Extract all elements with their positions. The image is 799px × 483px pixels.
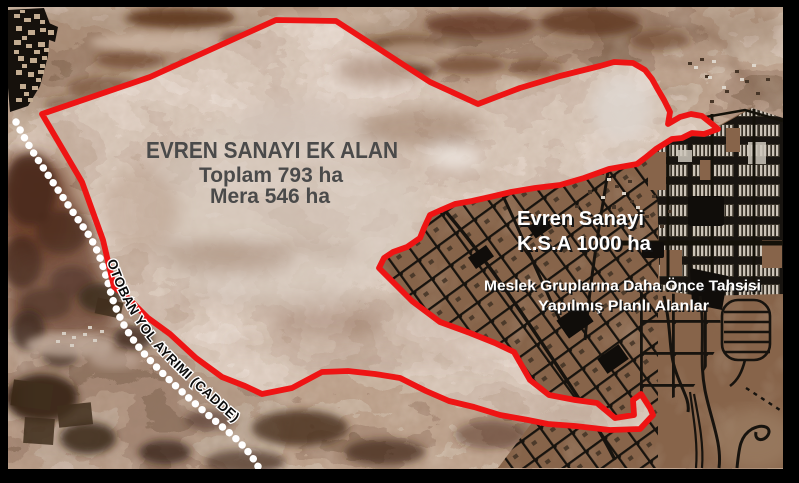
svg-text:Meslek Gruplarına Daha Önce Ta: Meslek Gruplarına Daha Önce Tahsisi bbox=[484, 278, 761, 295]
svg-text:EVREN SANAYI EK ALAN: EVREN SANAYI EK ALAN bbox=[146, 137, 398, 163]
svg-text:Mera 546 ha: Mera 546 ha bbox=[210, 185, 330, 208]
svg-text:K.S.A 1000 ha: K.S.A 1000 ha bbox=[517, 233, 652, 255]
svg-text:Yapılmış Planlı Alanlar: Yapılmış Planlı Alanlar bbox=[538, 299, 709, 315]
svg-text:Evren Sanayi: Evren Sanayi bbox=[517, 208, 644, 230]
svg-text:Toplam 793 ha: Toplam 793 ha bbox=[199, 164, 343, 187]
